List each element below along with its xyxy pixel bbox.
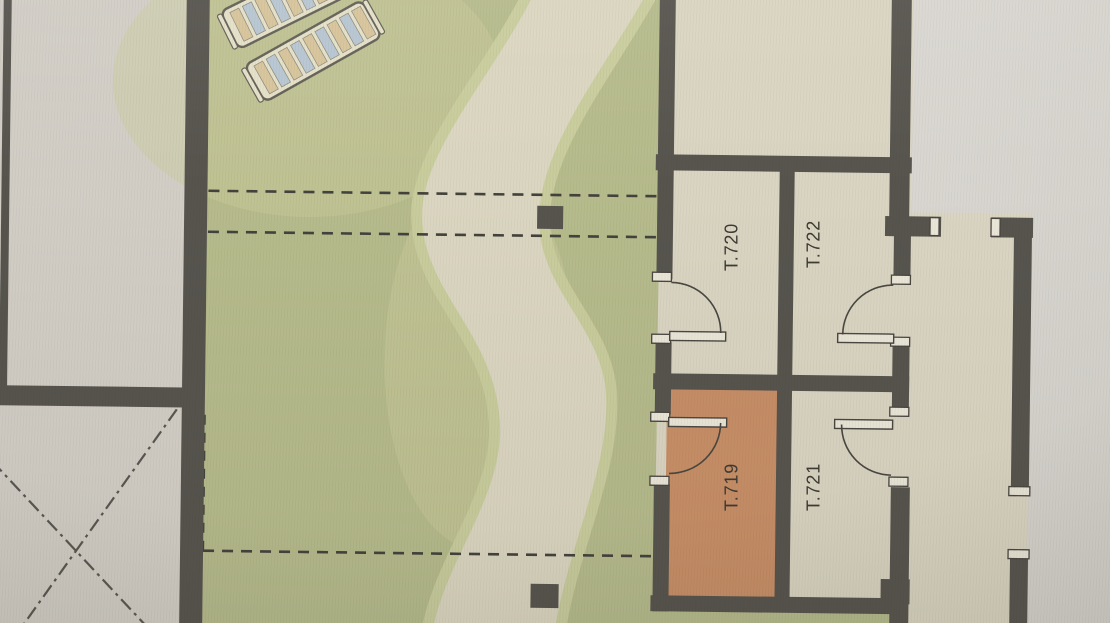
wall-rooms-north <box>656 154 912 173</box>
wall-rooms-east <box>889 0 912 218</box>
wall-left-horizontal <box>0 385 184 407</box>
door-leaf-t719 <box>669 417 727 427</box>
wall-outer-east <box>1009 552 1028 623</box>
door-jamb <box>652 334 671 343</box>
wall-rooms-south <box>650 595 902 614</box>
door-leaf-t720 <box>670 331 726 341</box>
door-jamb <box>891 275 910 284</box>
diagonal-dashed-line <box>22 408 177 623</box>
door-jamb <box>651 412 670 421</box>
door-jamb <box>890 407 909 416</box>
floorplan-drawing <box>0 0 1110 623</box>
room-label-t720: T.720 <box>722 223 743 271</box>
room-label-t722: T.722 <box>804 220 825 268</box>
page-edge-strip <box>0 0 12 395</box>
door-leaf-t722 <box>838 333 894 343</box>
wall-outer-east <box>1011 236 1032 496</box>
room-label-t719: T.719 <box>722 463 743 511</box>
wall-rooms-west <box>652 484 670 611</box>
door-jamb <box>1008 550 1029 559</box>
plan-rotated-group <box>0 0 1036 623</box>
door-leaf-t721 <box>835 419 893 429</box>
door-jamb <box>991 218 1000 236</box>
floorplan-photo: T.720 T.722 T.719 T.721 <box>0 0 1110 623</box>
wall-rooms-middle <box>653 373 909 392</box>
column-marker <box>530 584 558 608</box>
door-jamb <box>1009 487 1030 496</box>
door-jamb <box>889 477 908 486</box>
door-jamb <box>652 272 671 281</box>
column-marker <box>537 206 563 229</box>
diagonal-dashed-line <box>0 461 150 623</box>
door-jamb <box>650 476 669 485</box>
door-jamb <box>930 218 939 236</box>
room-label-t721: T.721 <box>804 463 825 511</box>
